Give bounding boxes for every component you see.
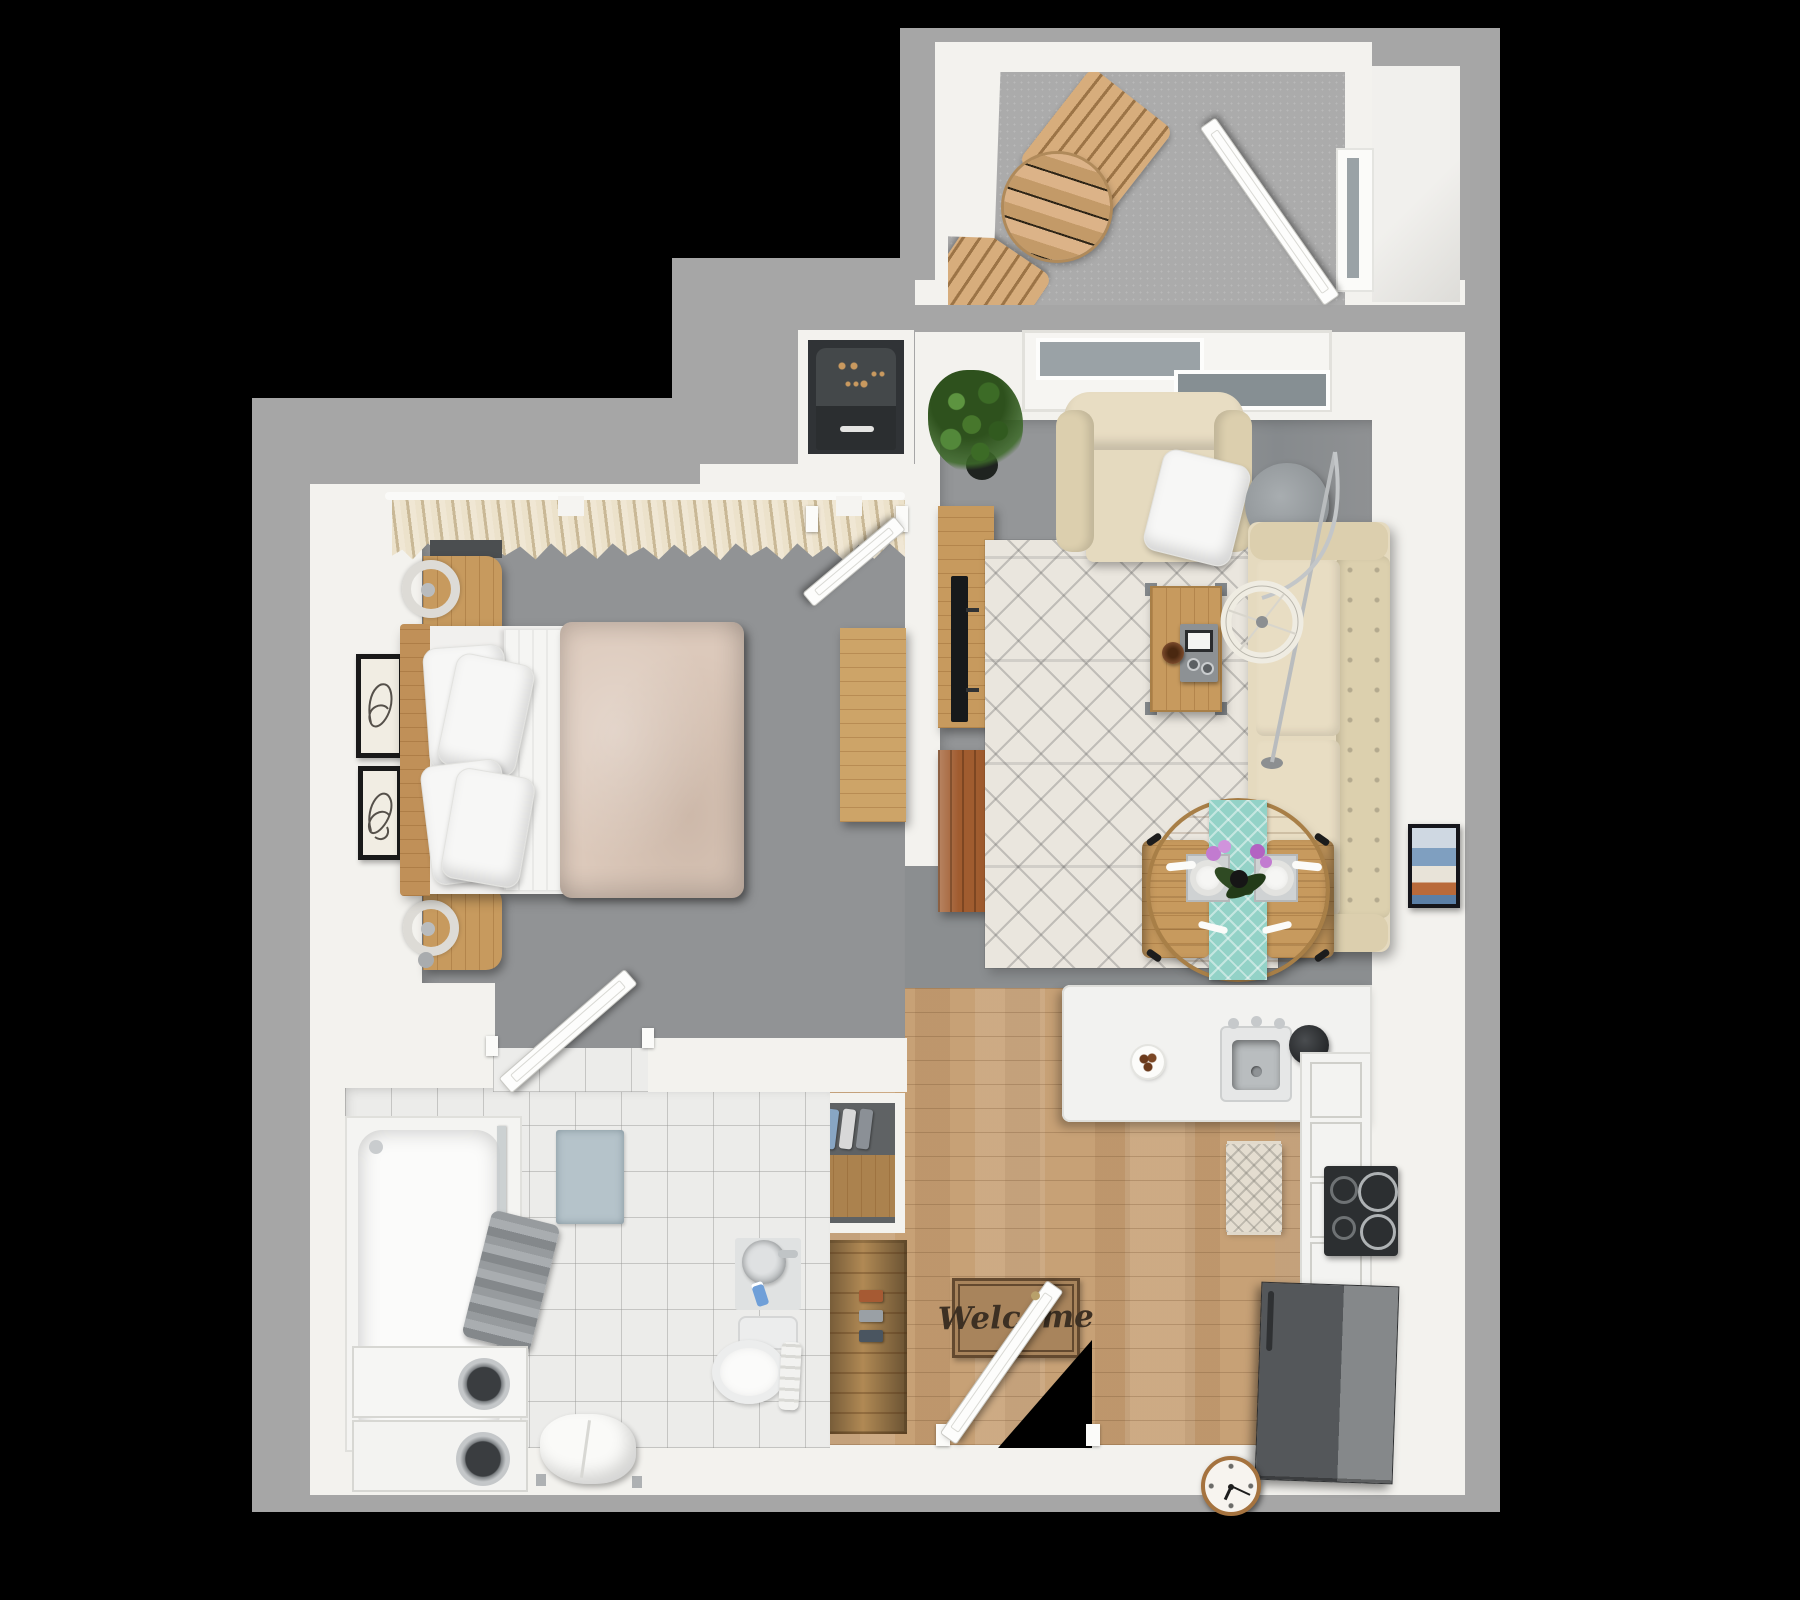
faucet-handle [1228,1018,1239,1029]
coffee-table [1150,586,1222,712]
table-lamp-top [402,560,460,618]
refrigerator [1255,1282,1400,1485]
cookie-plate [1132,1046,1164,1078]
orchid-centerpiece [1206,844,1270,918]
door-jamb [486,1036,498,1056]
cooktop [1324,1166,1398,1256]
washer-door [458,1358,510,1410]
balcony-bistro-table [1004,154,1110,260]
balcony-bottom-wall [900,305,1500,332]
faucet-handle [1251,1016,1262,1027]
water-heater-unit [816,348,896,450]
bath-mat [556,1130,624,1224]
burner [1330,1176,1358,1204]
tv-stand-arm [966,688,979,692]
sofa-seat-cushion [1256,560,1340,736]
tub-faucet [369,1140,383,1154]
hanging-garment [839,1108,857,1149]
burner [1332,1216,1356,1240]
folded-garment [859,1290,883,1302]
neighbor-balcony-area [1372,66,1460,302]
floor-plan: Welcome [0,0,1800,1600]
unit-handle [840,426,874,432]
tray-cup [1201,662,1214,675]
sofa-back-cushions [1336,556,1390,918]
armchair [1056,392,1252,570]
curtain-rod [385,492,905,500]
burner [1360,1214,1396,1250]
utility-closet [798,330,914,464]
bedroom-desk [840,628,906,822]
hanging-garment [856,1108,874,1149]
tv [951,576,968,722]
tv-stand-arm [966,608,979,612]
tray-screen [1185,630,1213,652]
folded-garment [859,1310,883,1322]
bench-foot [632,1476,642,1488]
curtain-bracket [558,496,584,516]
wall-art-living [1408,824,1460,908]
dryer-door [456,1432,510,1486]
pedestal-sink [742,1240,786,1284]
folded-garment [859,1330,883,1342]
folded-items-stack [859,1290,889,1370]
coffee-table-tray [1180,624,1218,682]
bedroom-bottom-wall-right [648,1038,907,1092]
faucet-handle [1274,1018,1285,1029]
kitchen-sink [1220,1026,1292,1102]
orchid-flower [1218,840,1231,853]
orchid-vase [1230,870,1248,888]
bedroom-wall-art-2 [358,766,402,860]
bedroom-bottom-wall-left [310,983,495,1052]
kitchen-runner-rug [1226,1144,1282,1232]
entry-coat-closet [827,1240,907,1434]
bedroom-wall-art-1 [356,654,404,758]
potted-plant [928,370,1023,482]
armchair-arm-left [1056,410,1094,552]
plant-leaves [928,370,1023,475]
lamp-bulb [421,922,435,936]
wooden-bowl [1162,642,1184,664]
abstract-line-art [361,659,399,753]
balcony-window [1336,148,1374,292]
curtain-bracket [836,496,862,516]
duvet [560,622,744,898]
bed [400,626,742,894]
lamp-bulb [421,583,435,597]
balcony-wall-pillar [937,44,1002,238]
orchid-flower [1260,856,1272,868]
door-jamb [1086,1424,1100,1446]
cabinet-panel [1310,1062,1362,1118]
sink-basin [1232,1040,1280,1090]
burner [1358,1172,1398,1212]
sofa-armrest [1250,522,1388,560]
hand-towel [778,1342,802,1411]
tray-cup [1187,658,1200,671]
balcony-window-glass [1347,158,1359,278]
abstract-line-art [363,771,397,855]
towel-bench [540,1414,640,1488]
fridge-handle [1266,1291,1274,1351]
sink-faucet [778,1250,798,1258]
bench-foot [536,1474,546,1486]
door-jamb [642,1028,654,1048]
door-jamb [806,506,818,532]
sink-drain [1251,1066,1262,1077]
toilet-bowl [712,1340,786,1404]
table-lamp-bottom [403,900,459,956]
lamp-sphere [418,952,434,968]
clock-center [1228,1484,1234,1490]
wall-clock [1201,1456,1261,1516]
dryer [352,1420,528,1492]
washer [352,1346,528,1418]
balcony-floor [948,72,1345,305]
